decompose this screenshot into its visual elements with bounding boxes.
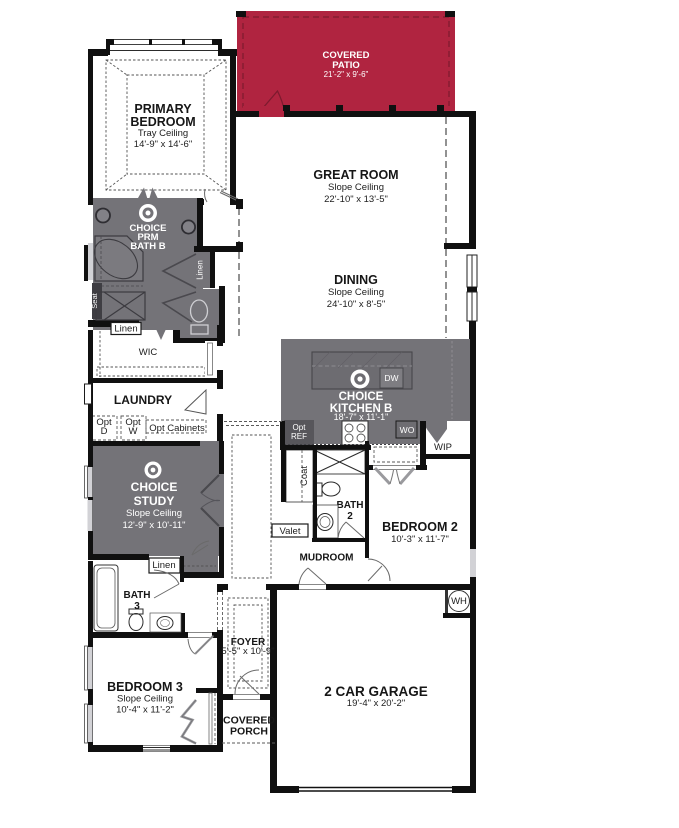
- svg-text:Slope Ceiling: Slope Ceiling: [117, 694, 173, 705]
- svg-text:24'-10" x 8'-5": 24'-10" x 8'-5": [327, 299, 385, 310]
- svg-text:D: D: [101, 426, 108, 437]
- svg-text:Tray Ceiling: Tray Ceiling: [138, 128, 188, 139]
- svg-text:DINING: DINING: [334, 273, 378, 287]
- svg-text:WIP: WIP: [434, 442, 452, 453]
- svg-text:21'-2" x 9'-6": 21'-2" x 9'-6": [324, 70, 369, 79]
- svg-text:14'-9" x 14'-6": 14'-9" x 14'-6": [134, 139, 192, 150]
- svg-text:10'-3" x 11'-7": 10'-3" x 11'-7": [391, 534, 449, 545]
- svg-text:Linen: Linen: [114, 324, 137, 335]
- svg-text:W: W: [129, 426, 138, 437]
- svg-text:LAUNDRY: LAUNDRY: [114, 393, 172, 407]
- svg-text:Slope Ceiling: Slope Ceiling: [328, 182, 384, 193]
- svg-text:CHOICE: CHOICE: [339, 391, 384, 403]
- svg-text:Opt Cabinets: Opt Cabinets: [149, 423, 205, 434]
- svg-text:Valet: Valet: [280, 526, 301, 537]
- svg-text:WH: WH: [451, 596, 467, 607]
- svg-text:Slope Ceiling: Slope Ceiling: [328, 287, 384, 298]
- svg-text:BEDROOM 2: BEDROOM 2: [382, 520, 458, 534]
- svg-text:BATH: BATH: [336, 500, 363, 511]
- svg-text:CHOICE: CHOICE: [131, 480, 178, 494]
- svg-text:Linen: Linen: [196, 260, 205, 280]
- svg-text:Coat: Coat: [299, 466, 310, 486]
- svg-text:2: 2: [347, 511, 353, 522]
- svg-text:BATH: BATH: [123, 590, 150, 601]
- svg-text:3: 3: [134, 601, 140, 612]
- svg-text:BATH B: BATH B: [130, 241, 165, 252]
- svg-text:Seat: Seat: [90, 292, 99, 308]
- svg-text:Slope Ceiling: Slope Ceiling: [126, 508, 182, 519]
- svg-text:WO: WO: [400, 425, 415, 435]
- svg-text:BEDROOM: BEDROOM: [130, 115, 195, 129]
- svg-text:REF: REF: [291, 432, 307, 441]
- svg-text:2 CAR GARAGE: 2 CAR GARAGE: [324, 684, 428, 699]
- svg-text:DW: DW: [384, 373, 398, 383]
- svg-text:12'-9" x 10'-11": 12'-9" x 10'-11": [122, 520, 185, 531]
- svg-text:5'-5" x 10'-9": 5'-5" x 10'-9": [221, 646, 274, 657]
- svg-text:GREAT ROOM: GREAT ROOM: [313, 168, 398, 182]
- svg-text:Opt: Opt: [293, 423, 307, 432]
- svg-text:WIC: WIC: [139, 347, 158, 358]
- svg-text:Linen: Linen: [152, 560, 175, 571]
- svg-text:BEDROOM 3: BEDROOM 3: [107, 680, 183, 694]
- svg-text:PRIMARY: PRIMARY: [134, 102, 192, 116]
- svg-text:MUDROOM: MUDROOM: [300, 553, 354, 564]
- svg-text:STUDY: STUDY: [134, 494, 175, 508]
- svg-text:10'-4" x 11'-2": 10'-4" x 11'-2": [116, 705, 174, 716]
- svg-text:PORCH: PORCH: [230, 726, 268, 738]
- svg-text:19'-4" x 20'-2": 19'-4" x 20'-2": [347, 698, 405, 709]
- svg-text:22'-10" x 13'-5": 22'-10" x 13'-5": [324, 194, 388, 205]
